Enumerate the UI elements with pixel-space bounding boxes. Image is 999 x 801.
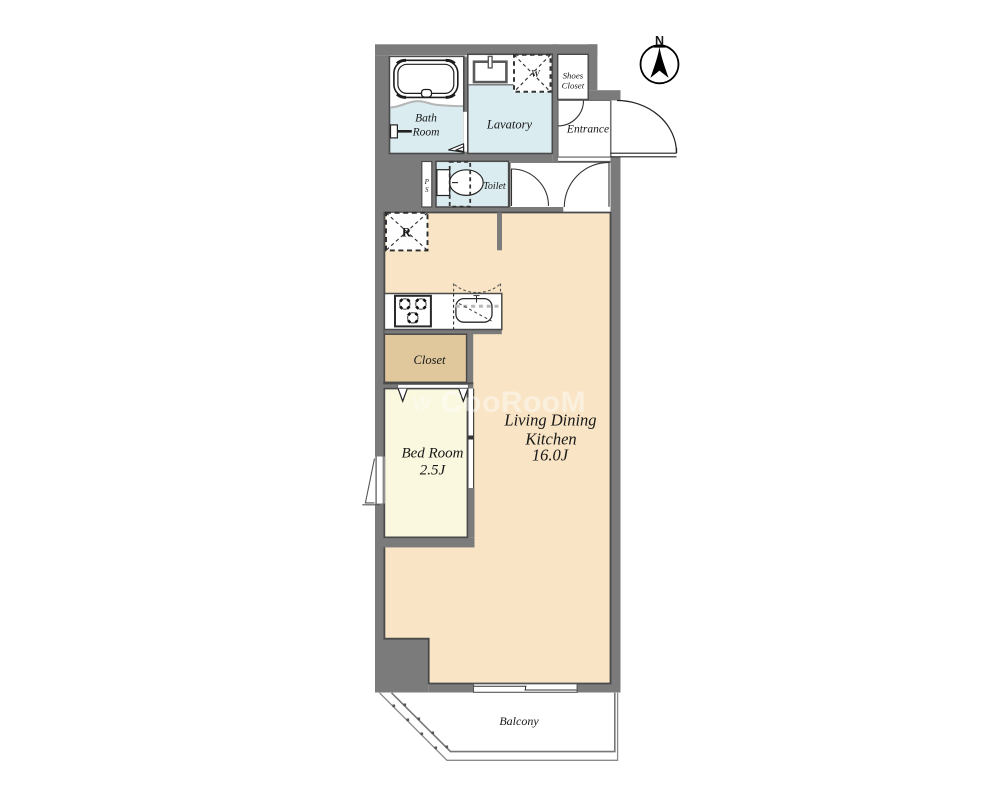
svg-text:Balcony: Balcony [499,714,539,728]
svg-text:Room: Room [412,127,440,139]
svg-text:S: S [425,186,429,194]
svg-text:CooRooM: CooRooM [441,386,586,419]
svg-text:w: w [413,389,432,416]
svg-text:Closet: Closet [562,81,585,91]
svg-text:Closet: Closet [414,353,446,367]
svg-text:Entrance: Entrance [566,124,609,136]
svg-text:W: W [531,69,541,80]
svg-text:Lavatory: Lavatory [486,118,533,132]
svg-text:N: N [655,34,664,48]
svg-text:Shoes: Shoes [563,71,584,81]
svg-text:Toilet: Toilet [483,181,506,192]
svg-text:R: R [402,226,412,240]
svg-text:Bed Room: Bed Room [401,446,463,462]
svg-text:P: P [424,178,430,186]
svg-text:16.0J: 16.0J [532,446,569,465]
svg-text:Bath: Bath [415,113,437,125]
svg-text:2.5J: 2.5J [420,463,447,479]
